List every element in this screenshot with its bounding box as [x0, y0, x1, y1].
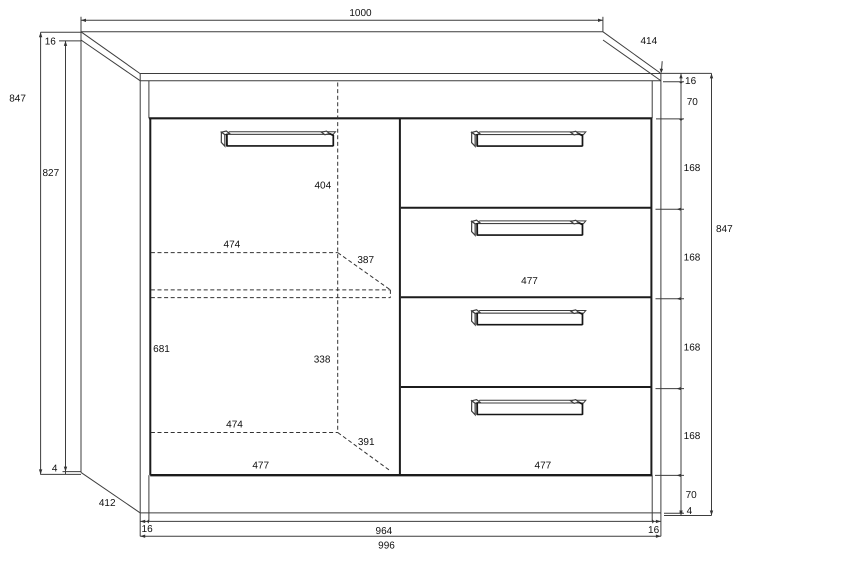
- svg-text:168: 168: [684, 163, 701, 174]
- svg-text:414: 414: [640, 36, 657, 47]
- svg-text:477: 477: [535, 460, 552, 471]
- svg-text:387: 387: [357, 255, 374, 266]
- svg-text:168: 168: [684, 342, 701, 353]
- svg-text:404: 404: [314, 180, 331, 191]
- svg-text:412: 412: [99, 498, 116, 509]
- svg-text:70: 70: [686, 490, 698, 501]
- svg-text:847: 847: [9, 94, 26, 105]
- svg-text:964: 964: [376, 526, 393, 537]
- svg-text:338: 338: [314, 354, 331, 365]
- svg-text:70: 70: [687, 97, 699, 108]
- svg-text:681: 681: [153, 344, 170, 355]
- svg-text:391: 391: [358, 437, 375, 448]
- svg-text:168: 168: [684, 431, 701, 442]
- svg-text:168: 168: [684, 252, 701, 263]
- svg-text:996: 996: [378, 540, 395, 551]
- svg-text:474: 474: [224, 239, 241, 250]
- svg-text:4: 4: [687, 506, 693, 517]
- svg-text:4: 4: [52, 463, 58, 474]
- svg-text:16: 16: [142, 524, 154, 535]
- svg-text:827: 827: [42, 168, 59, 179]
- svg-text:1000: 1000: [349, 8, 372, 19]
- svg-text:474: 474: [226, 420, 243, 431]
- svg-text:847: 847: [716, 224, 733, 235]
- svg-text:16: 16: [45, 36, 57, 47]
- svg-text:477: 477: [521, 276, 538, 287]
- svg-text:477: 477: [252, 461, 269, 472]
- svg-text:16: 16: [685, 76, 697, 87]
- svg-text:16: 16: [648, 525, 660, 536]
